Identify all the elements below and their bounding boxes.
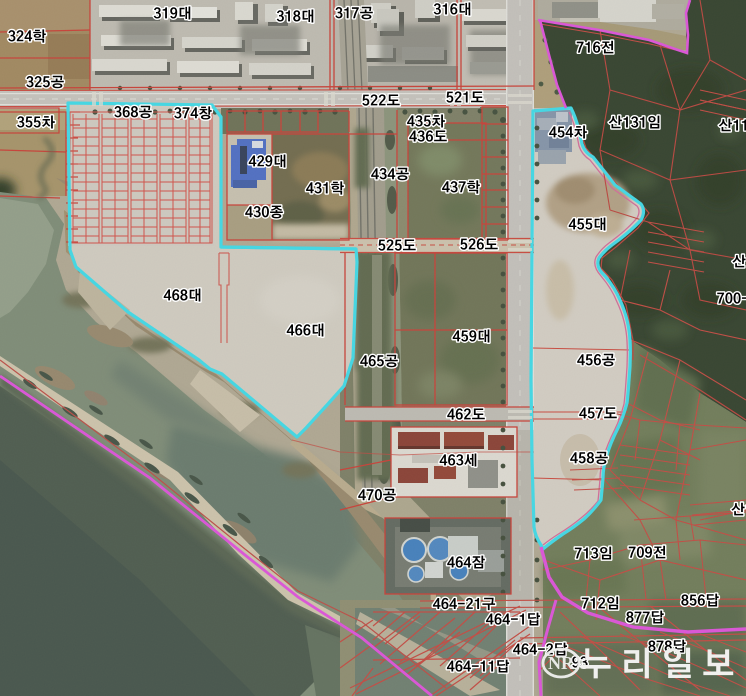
svg-text:NR: NR bbox=[548, 653, 575, 673]
